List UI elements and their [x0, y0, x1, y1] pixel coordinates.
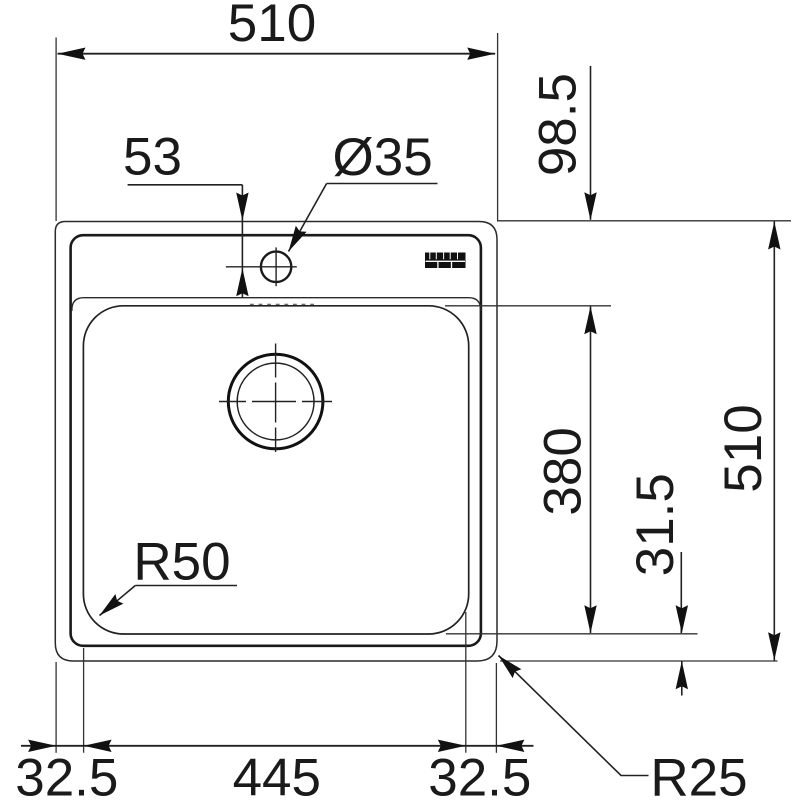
svg-text:445: 445 [233, 749, 321, 800]
svg-text:R25: R25 [650, 749, 747, 800]
svg-text:31.5: 31.5 [626, 473, 685, 576]
svg-text:32.5: 32.5 [15, 749, 118, 800]
svg-text:510: 510 [228, 0, 316, 53]
svg-text:R50: R50 [133, 532, 230, 591]
svg-text:380: 380 [534, 427, 593, 515]
svg-text:510: 510 [714, 404, 773, 492]
svg-text:32.5: 32.5 [428, 749, 531, 800]
svg-text:53: 53 [123, 127, 182, 186]
svg-text:98.5: 98.5 [529, 73, 588, 176]
svg-text:Ø35: Ø35 [333, 128, 433, 187]
